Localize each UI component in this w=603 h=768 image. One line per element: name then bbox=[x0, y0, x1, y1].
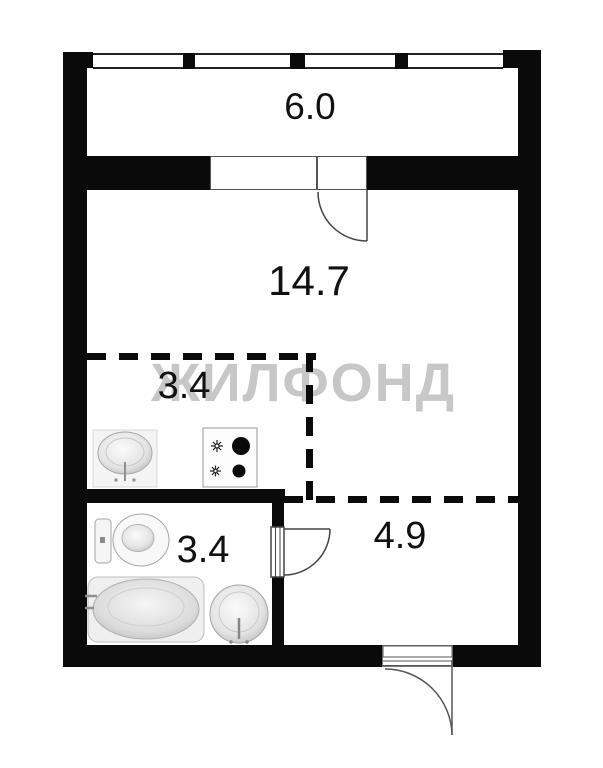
bathtub-icon bbox=[85, 577, 204, 642]
kitchen-sink-icon bbox=[93, 430, 157, 487]
entrance-door bbox=[383, 646, 452, 735]
kitchen-zone-dashed-line-v bbox=[306, 353, 313, 503]
kitchen-area-label: 3.4 bbox=[134, 367, 234, 405]
floor-plan: ЖИЛФОНД 6.0 14.7 3.4 3.4 4.9 bbox=[0, 0, 603, 768]
stove-icon bbox=[203, 428, 257, 487]
washbasin-icon bbox=[210, 585, 268, 644]
living-room-area-label: 14.7 bbox=[234, 260, 384, 302]
kitchen-zone-dashed-line-h bbox=[87, 353, 316, 360]
bathroom-area-label: 3.4 bbox=[153, 531, 253, 569]
hallway-dashed-line bbox=[284, 496, 518, 503]
balcony-area-label: 6.0 bbox=[260, 88, 360, 125]
balcony-door bbox=[318, 190, 367, 241]
hallway-area-label: 4.9 bbox=[350, 517, 450, 555]
bathroom-door bbox=[271, 527, 330, 577]
